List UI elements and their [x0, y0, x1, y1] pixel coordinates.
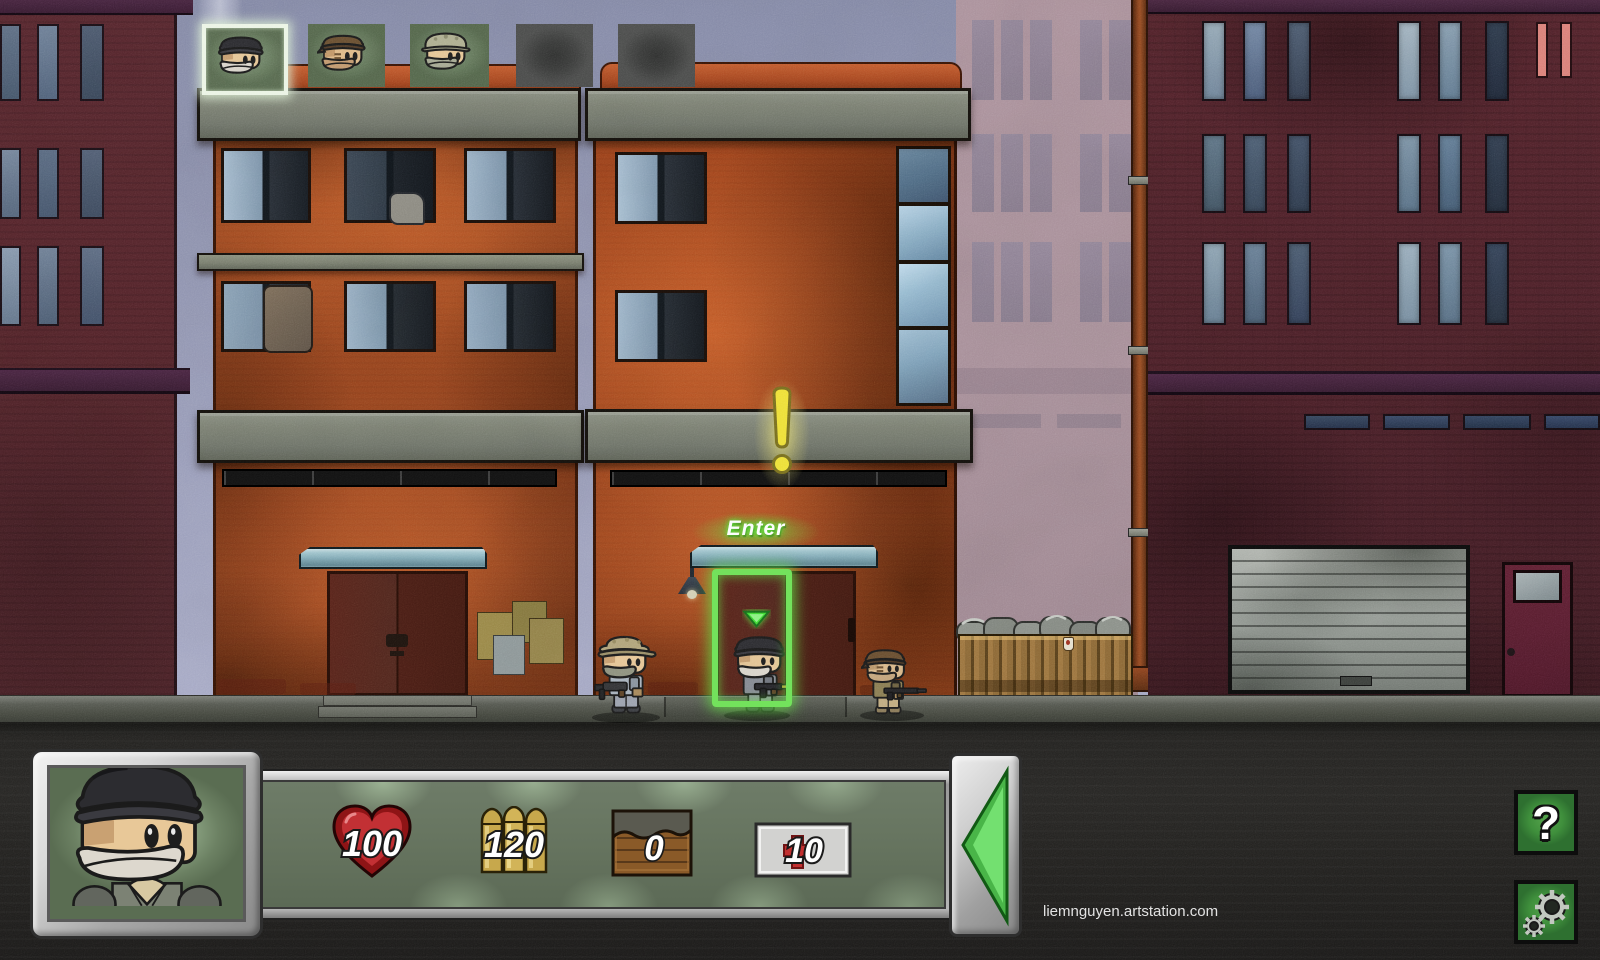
svg-text:100: 100 — [342, 823, 402, 864]
svg-text:0: 0 — [644, 829, 664, 868]
svg-text:10: 10 — [785, 832, 823, 870]
svg-text:120: 120 — [484, 824, 544, 865]
